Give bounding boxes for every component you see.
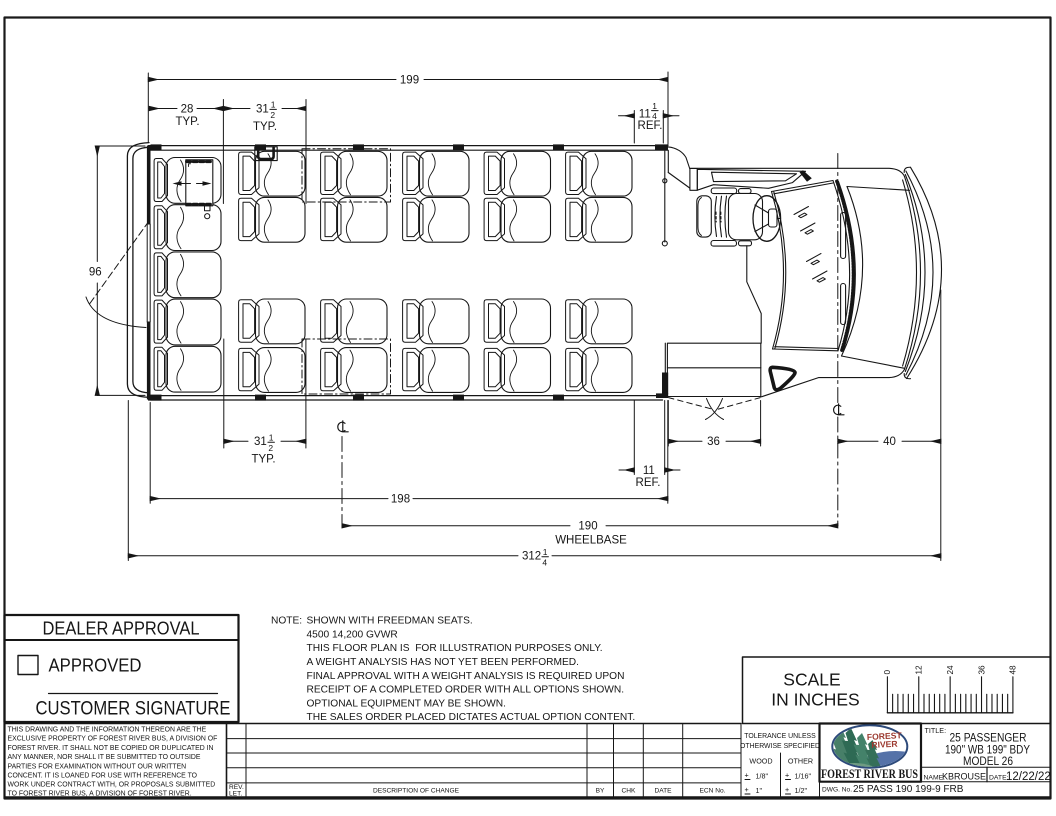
svg-text:TYP.: TYP. — [251, 454, 275, 466]
svg-text:DESCRIPTION OF CHANGE: DESCRIPTION OF CHANGE — [373, 788, 460, 795]
svg-text:RECEIPT OF A COMPLETED ORDER W: RECEIPT OF A COMPLETED ORDER WITH ALL OP… — [307, 685, 625, 696]
svg-text:31: 31 — [256, 103, 269, 115]
svg-text:1: 1 — [269, 432, 274, 442]
svg-text:THIS DRAWING AND THE INFORMATI: THIS DRAWING AND THE INFORMATION THEREON… — [8, 727, 207, 734]
svg-text:+: + — [785, 771, 789, 780]
svg-text:CONCENT. IT IS LOANED FOR USE: CONCENT. IT IS LOANED FOR USE WITH REFER… — [8, 773, 198, 780]
svg-text:DEALER APPROVAL: DEALER APPROVAL — [43, 619, 200, 639]
svg-text:36: 36 — [707, 436, 720, 448]
svg-text:APPROVED: APPROVED — [49, 656, 142, 676]
svg-text:TITLE:: TITLE: — [925, 726, 947, 735]
svg-text:31: 31 — [254, 436, 267, 448]
svg-text:24: 24 — [946, 665, 955, 675]
svg-text:1/8": 1/8" — [756, 772, 769, 781]
svg-text:LET.: LET. — [229, 791, 242, 798]
svg-text:1": 1" — [756, 786, 763, 795]
svg-text:198: 198 — [391, 493, 410, 505]
svg-text:MODEL 26: MODEL 26 — [963, 756, 1013, 768]
svg-text:28: 28 — [181, 103, 194, 115]
svg-text:4500 14,200 GVWR: 4500 14,200 GVWR — [307, 629, 398, 640]
svg-text:THIS FLOOR PLAN IS FOR ILLUST: THIS FLOOR PLAN IS FOR ILLUSTRATION PURP… — [307, 643, 603, 654]
svg-text:25 PASSENGER: 25 PASSENGER — [950, 733, 1027, 745]
svg-text:FOREST RIVER BUS: FOREST RIVER BUS — [821, 767, 918, 781]
svg-text:36: 36 — [977, 665, 986, 675]
svg-text:IN INCHES: IN INCHES — [771, 690, 859, 710]
svg-text:1: 1 — [271, 100, 276, 110]
svg-text:SCALE: SCALE — [783, 670, 840, 690]
svg-text:DWG. No.: DWG. No. — [822, 787, 852, 794]
svg-text:1/2": 1/2" — [795, 786, 808, 795]
svg-text:312: 312 — [522, 551, 541, 563]
svg-text:CUSTOMER SIGNATURE: CUSTOMER SIGNATURE — [36, 699, 231, 720]
svg-text:12/22/22: 12/22/22 — [1006, 771, 1051, 783]
svg-text:EXCLUSIVE PROPERTY OF FOREST R: EXCLUSIVE PROPERTY OF FOREST RIVER BUS, … — [8, 736, 218, 743]
svg-text:NOTE:: NOTE: — [271, 616, 302, 627]
svg-text:THE SALES ORDER PLACED DICTATE: THE SALES ORDER PLACED DICTATES ACTUAL O… — [307, 712, 636, 723]
svg-text:0: 0 — [883, 670, 892, 675]
svg-text:1: 1 — [543, 547, 548, 557]
svg-text:190" WB 199" BDY: 190" WB 199" BDY — [945, 744, 1030, 756]
svg-text:REF.: REF. — [638, 120, 663, 132]
svg-text:DATE: DATE — [654, 788, 672, 795]
svg-text:WOOD: WOOD — [749, 757, 772, 766]
svg-text:PARTIES FOR EXAMINATION WITHOU: PARTIES FOR EXAMINATION WITHOUT OUR WRIT… — [8, 763, 187, 770]
svg-text:48: 48 — [1009, 665, 1018, 675]
svg-text:REF.: REF. — [636, 477, 661, 489]
svg-text:WHEELBASE: WHEELBASE — [555, 534, 627, 546]
svg-text:1: 1 — [652, 101, 657, 111]
svg-text:CHK: CHK — [622, 788, 637, 795]
svg-text:12: 12 — [915, 665, 924, 675]
svg-text:WORK UNDER CONTRACT WITH, OR P: WORK UNDER CONTRACT WITH, OR PROPOSALS S… — [8, 782, 216, 789]
svg-text:BY: BY — [596, 788, 605, 795]
svg-text:A WEIGHT ANALYSIS HAS NOT YET: A WEIGHT ANALYSIS HAS NOT YET BEEN PERFO… — [307, 657, 580, 668]
svg-text:OPTIONAL EQUIPMENT MAY BE SHOW: OPTIONAL EQUIPMENT MAY BE SHOWN. — [307, 698, 506, 709]
svg-text:+: + — [785, 785, 789, 794]
svg-text:40: 40 — [883, 436, 896, 448]
svg-text:+: + — [745, 771, 749, 780]
svg-text:2: 2 — [270, 110, 275, 120]
svg-text:TO FOREST RIVER BUS, A DIVISIO: TO FOREST RIVER BUS, A DIVISION OF FORES… — [8, 791, 192, 798]
svg-text:199: 199 — [400, 74, 419, 86]
svg-text:TYP.: TYP. — [175, 116, 199, 128]
svg-text:1/16": 1/16" — [795, 772, 812, 781]
svg-text:2: 2 — [268, 443, 273, 453]
svg-text:SHOWN WITH FREEDMAN SEATS.: SHOWN WITH FREEDMAN SEATS. — [307, 616, 473, 627]
svg-text:OTHER: OTHER — [788, 757, 813, 766]
svg-text:96: 96 — [89, 267, 102, 279]
svg-text:TYP.: TYP. — [253, 121, 277, 133]
svg-text:TOLERANCE UNLESS: TOLERANCE UNLESS — [744, 733, 816, 740]
svg-text:190: 190 — [578, 521, 597, 533]
svg-text:4: 4 — [542, 557, 547, 567]
svg-text:FOREST RIVER. IT SHALL NOT BE: FOREST RIVER. IT SHALL NOT BE COPIED OR … — [8, 745, 214, 752]
svg-text:FINAL APPROVAL WITH A WEIGHT A: FINAL APPROVAL WITH A WEIGHT ANALYSIS IS… — [307, 671, 625, 682]
svg-text:25 PASS 190 199-9 FRB: 25 PASS 190 199-9 FRB — [853, 784, 964, 795]
svg-text:ANY MANNER, NOR SHALL IT BE SU: ANY MANNER, NOR SHALL IT BE SUBMITTED TO… — [8, 754, 201, 761]
svg-text:+: + — [745, 785, 749, 794]
svg-text:KBROUSE: KBROUSE — [942, 772, 986, 782]
svg-text:OTHERWISE SPECIFIED: OTHERWISE SPECIFIED — [740, 743, 820, 750]
svg-text:11: 11 — [639, 108, 651, 120]
svg-text:ECN No.: ECN No. — [699, 788, 725, 795]
svg-text:RIVER: RIVER — [871, 739, 899, 750]
svg-text:11: 11 — [643, 465, 655, 477]
